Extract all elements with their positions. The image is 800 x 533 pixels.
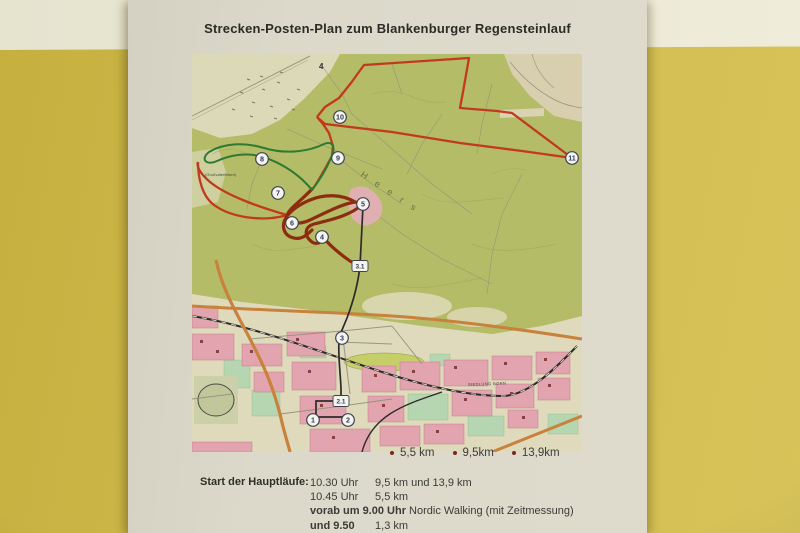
- topographic-map: 4Heers(Großvaterfelsen)SIEDLUNG BORN 109…: [192, 54, 582, 452]
- schedule-distance: 1,3 km: [372, 520, 408, 532]
- photo-of-wall: { "photo": { "colors": { "wall_yellow": …: [0, 0, 800, 533]
- checkpoint-marker-10: 10: [334, 111, 347, 124]
- map-text-label: (Großvaterfelsen): [205, 172, 237, 177]
- course-map: 4Heers(Großvaterfelsen)SIEDLUNG BORN 109…: [192, 54, 582, 452]
- schedule-time: vorab um 9.00 Uhr: [310, 504, 406, 518]
- legend-label: 5,5 km: [400, 447, 435, 459]
- schedule-distance: Nordic Walking (mit Zeitmessung): [406, 505, 574, 517]
- schedule-time: 10.30 Uhr: [310, 476, 372, 490]
- checkpoint-marker-8: 8: [256, 153, 269, 166]
- checkpoint-marker-7: 7: [272, 187, 285, 200]
- schedule-distance: 9,5 km und 13,9 km: [372, 477, 472, 489]
- schedule-row: 10.45 Uhr 5,5 km: [310, 490, 574, 504]
- schedule-time: 10.45 Uhr: [310, 490, 372, 504]
- legend-label: 9,5km: [463, 447, 494, 459]
- svg-text:4: 4: [320, 233, 324, 242]
- checkpoint-marker-6: 6: [286, 217, 299, 230]
- svg-text:6: 6: [290, 219, 294, 228]
- svg-text:2.1: 2.1: [337, 398, 346, 405]
- checkpoint-box-3.1: 3.1: [352, 261, 368, 272]
- svg-text:11: 11: [568, 154, 576, 163]
- legend-dot-icon: [453, 451, 457, 455]
- svg-text:7: 7: [276, 189, 280, 198]
- legend-dot-icon: [390, 451, 394, 455]
- schedule-distance: 5,5 km: [372, 491, 408, 503]
- schedule-row: 10.30 Uhr 9,5 km und 13,9 km: [310, 476, 574, 490]
- checkpoint-marker-3: 3: [336, 332, 349, 345]
- schedule-time: und 9.50: [310, 519, 372, 533]
- checkpoint-marker-9: 9: [332, 152, 345, 165]
- svg-text:1: 1: [311, 416, 315, 425]
- checkpoint-marker-1: 1: [307, 414, 320, 427]
- map-text-label: 4: [319, 62, 324, 71]
- svg-text:10: 10: [336, 113, 344, 122]
- svg-text:2: 2: [346, 416, 350, 425]
- svg-text:9: 9: [336, 154, 340, 163]
- stadium-oval: [198, 384, 234, 416]
- svg-text:8: 8: [260, 155, 264, 164]
- legend: 5,5 km9,5km13,9km: [390, 447, 560, 459]
- legend-item: 5,5 km: [390, 447, 435, 459]
- legend-dot-icon: [512, 451, 516, 455]
- legend-item: 9,5km: [453, 447, 494, 459]
- svg-text:5: 5: [361, 200, 365, 209]
- schedule-heading: Start der Hauptläufe:: [200, 476, 309, 488]
- schedule-rows: 10.30 Uhr 9,5 km und 13,9 km10.45 Uhr 5,…: [310, 476, 574, 533]
- checkpoint-marker-4: 4: [316, 231, 329, 244]
- checkpoint-marker-2: 2: [342, 414, 355, 427]
- legend-label: 13,9km: [522, 447, 560, 459]
- poster-title: Strecken-Posten-Plan zum Blankenburger R…: [128, 21, 647, 36]
- checkpoint-marker-11: 11: [566, 152, 579, 165]
- checkpoint-marker-5: 5: [357, 198, 370, 211]
- legend-item: 13,9km: [512, 447, 560, 459]
- schedule-row: und 9.50 1,3 km: [310, 519, 574, 533]
- poster-paper: Strecken-Posten-Plan zum Blankenburger R…: [128, 0, 647, 533]
- schedule-row: vorab um 9.00 Uhr Nordic Walking (mit Ze…: [310, 504, 574, 518]
- svg-text:3: 3: [340, 334, 344, 343]
- svg-text:3.1: 3.1: [356, 263, 365, 270]
- checkpoint-box-2.1: 2.1: [333, 396, 349, 407]
